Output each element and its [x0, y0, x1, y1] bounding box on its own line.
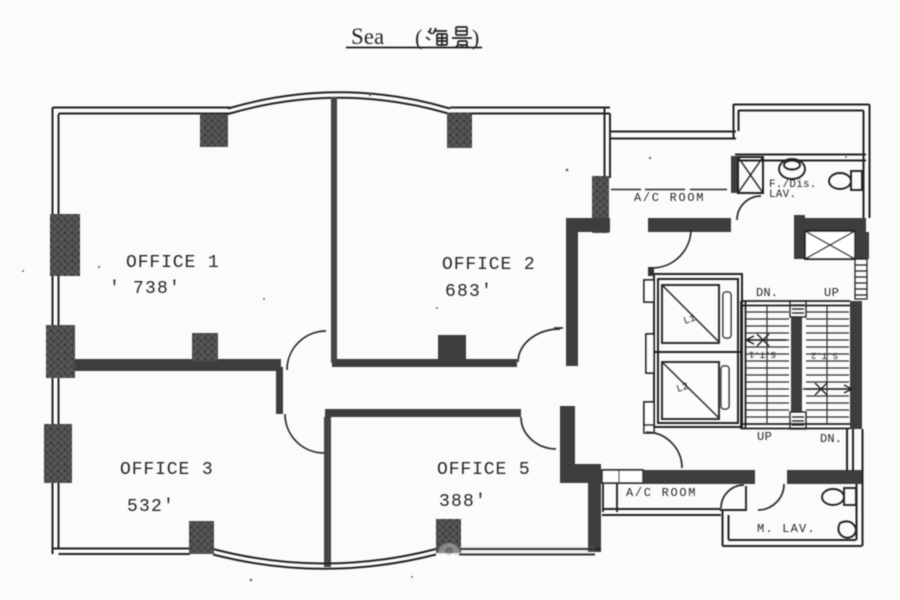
- svg-text:L2: L2: [675, 382, 690, 396]
- svg-text:UP: UP: [824, 286, 839, 300]
- svg-text:532': 532': [127, 497, 175, 517]
- svg-text:DN.: DN.: [756, 286, 778, 300]
- svg-text:Sea: Sea: [351, 24, 384, 49]
- svg-text:S.T.2: S.T.2: [811, 350, 838, 360]
- svg-text:OFFICE 5: OFFICE 5: [437, 460, 531, 480]
- svg-text:A/C ROOM: A/C ROOM: [626, 486, 697, 500]
- svg-text:UP: UP: [757, 430, 772, 444]
- svg-text:683': 683': [445, 282, 493, 302]
- svg-text:L1: L1: [682, 314, 697, 328]
- svg-text:): ): [472, 25, 479, 50]
- svg-text:' 738': ' 738': [109, 279, 181, 299]
- svg-text:388': 388': [439, 492, 487, 512]
- svg-text:DN.: DN.: [820, 432, 842, 446]
- svg-text:OFFICE 3: OFFICE 3: [120, 460, 214, 480]
- svg-text:OFFICE 1: OFFICE 1: [126, 253, 220, 273]
- svg-text:S.T.1: S.T.1: [749, 349, 776, 359]
- svg-text:OFFICE 2: OFFICE 2: [442, 255, 536, 275]
- svg-text:LAV.: LAV.: [769, 189, 796, 201]
- svg-text:M. LAV.: M. LAV.: [757, 522, 816, 536]
- svg-text:A/C ROOM: A/C ROOM: [634, 191, 705, 205]
- svg-text:(: (: [415, 25, 422, 50]
